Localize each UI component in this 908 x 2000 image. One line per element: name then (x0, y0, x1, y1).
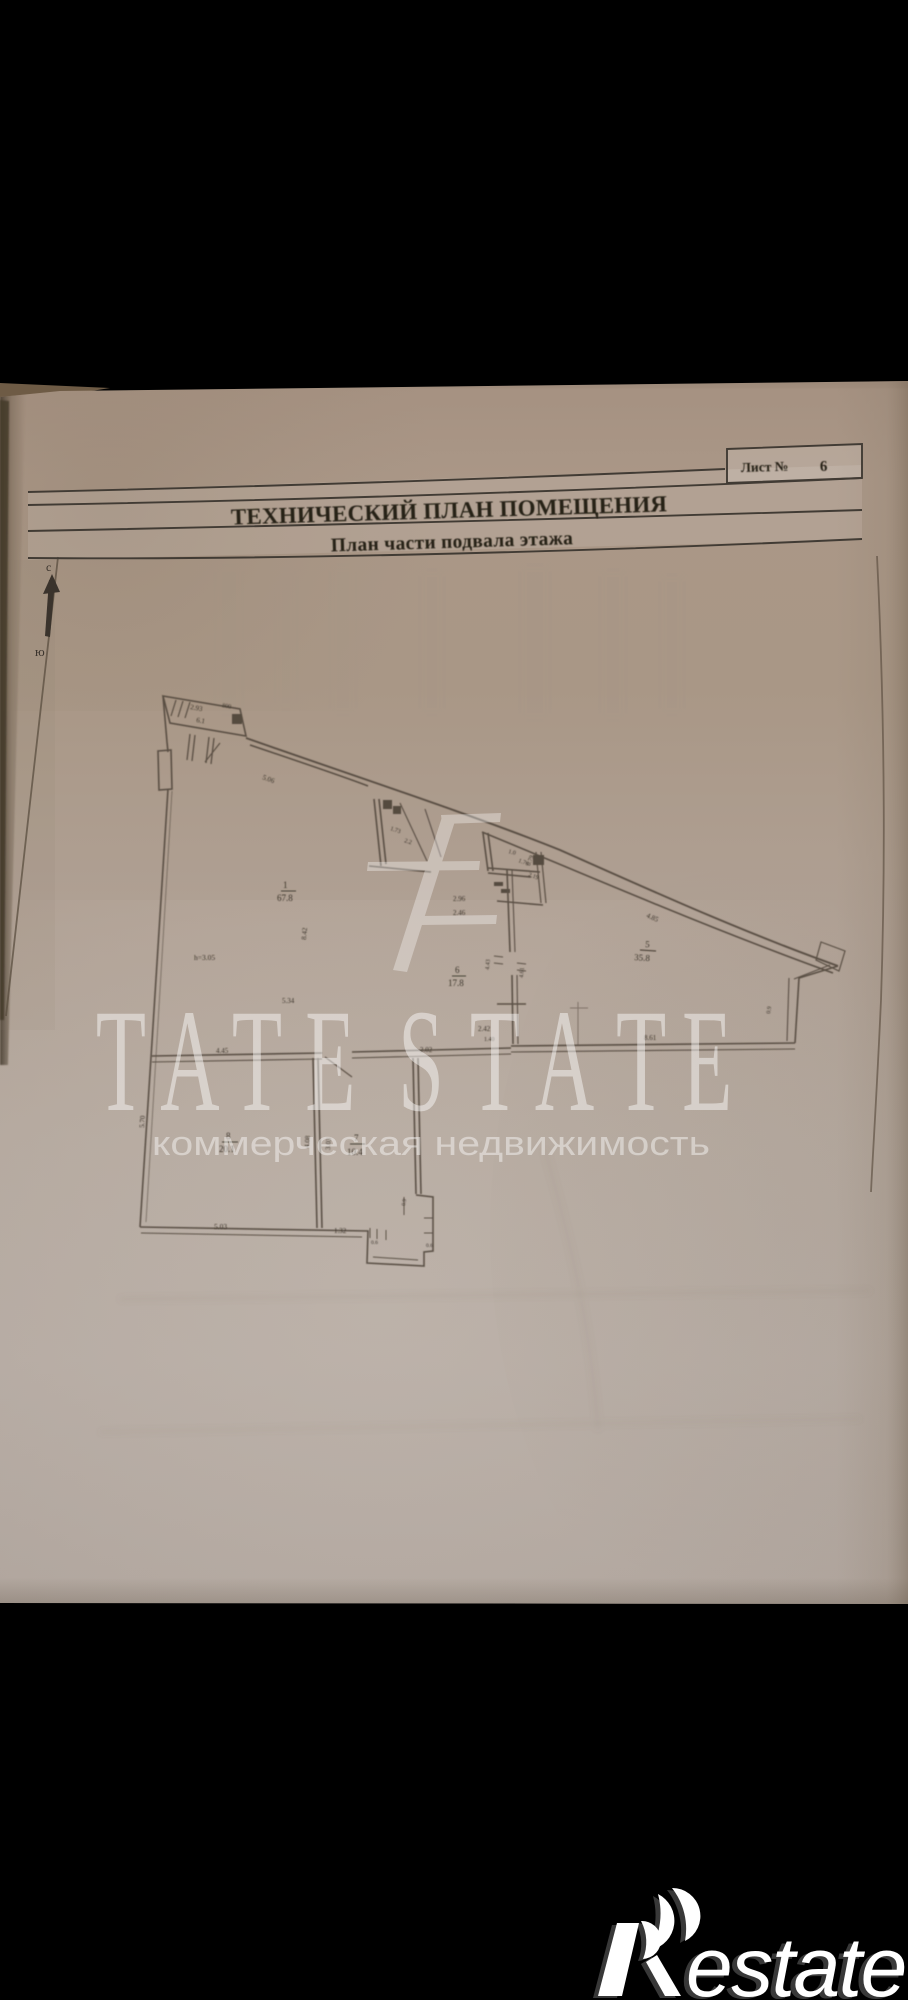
svg-text:1: 1 (283, 880, 288, 890)
svg-text:estate: estate (686, 1920, 906, 2000)
svg-text:ю: ю (35, 644, 45, 659)
svg-text:5.03: 5.03 (214, 1222, 227, 1231)
svg-text:h=3.05: h=3.05 (194, 953, 215, 962)
svg-text:A: A (160, 979, 219, 1142)
svg-text:T: T (96, 979, 146, 1142)
svg-text:T: T (616, 979, 666, 1142)
svg-text:T: T (232, 979, 282, 1142)
svg-text:67.8: 67.8 (277, 893, 293, 903)
svg-text:4.61: 4.61 (519, 967, 526, 978)
svg-text:0.9: 0.9 (766, 1006, 773, 1014)
svg-text:A: A (535, 979, 594, 1142)
svg-text:0.6: 0.6 (371, 1240, 378, 1246)
svg-text:6: 6 (455, 965, 460, 975)
svg-text:E: E (305, 979, 355, 1142)
svg-text:1.32: 1.32 (334, 1227, 347, 1235)
svg-text:S: S (398, 979, 444, 1142)
svg-text:35.8: 35.8 (634, 952, 651, 963)
svg-text:E: E (682, 979, 732, 1142)
svg-text:T: T (470, 979, 520, 1142)
svg-text:8.42: 8.42 (300, 927, 309, 940)
svg-text:5.34: 5.34 (282, 997, 295, 1005)
svg-text:0.9: 0.9 (401, 1198, 408, 1206)
svg-text:17.8: 17.8 (448, 978, 464, 988)
svg-text:Лист №: Лист № (741, 459, 789, 475)
svg-text:с: с (46, 560, 51, 574)
svg-text:6: 6 (820, 459, 828, 475)
svg-text:4.43: 4.43 (485, 959, 492, 970)
svg-text:0.6: 0.6 (426, 1243, 433, 1249)
svg-text:коммерческая недвижимость: коммерческая недвижимость (152, 1125, 710, 1163)
svg-text:2.96: 2.96 (453, 895, 466, 903)
